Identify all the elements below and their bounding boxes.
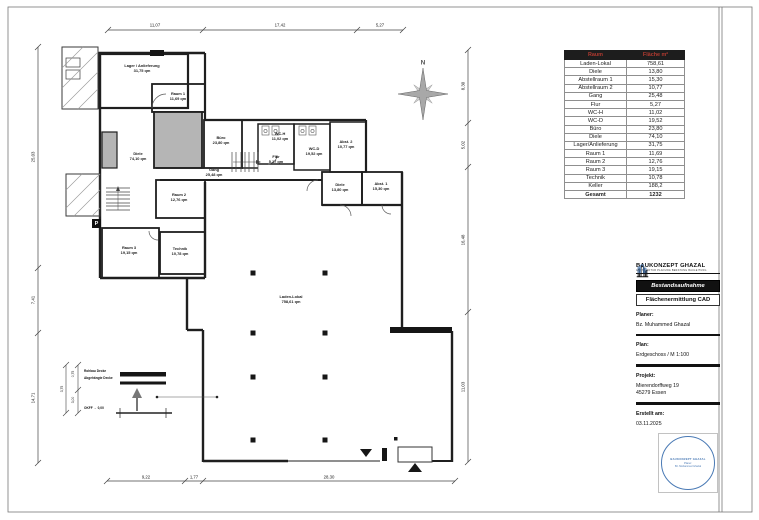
leader-line xyxy=(156,396,219,399)
plan-label: Plan: xyxy=(636,342,720,348)
table-row: WC-D19,52 xyxy=(565,117,685,125)
dim-top-3: 5,27 xyxy=(376,23,384,28)
detail-dim-2: 0,75 xyxy=(71,371,75,378)
divider xyxy=(636,334,720,337)
ceiling-detail xyxy=(63,362,172,418)
table-row: Laden-Lokal758,61 xyxy=(565,60,685,68)
area-table-header: Raum Fläche m² xyxy=(565,51,685,60)
project-address-line2: 45279 Essen xyxy=(636,390,720,397)
dim-bottom-3: 28,30 xyxy=(324,475,335,480)
parking-marker: P xyxy=(92,219,101,228)
doc-subtype-banner: Flächenermittlung CAD xyxy=(636,294,720,306)
doc-type-banner: Bestandsaufnahme xyxy=(636,280,720,292)
table-row: Diele74,10 xyxy=(565,133,685,141)
room-label-abst1: Abst. 115,30 qm xyxy=(373,182,390,192)
table-row: Büro23,80 xyxy=(565,125,685,133)
drawing-sheet: N P Lager / Anlieferung31,75 qm Raum 111… xyxy=(0,0,759,520)
entrance-markers xyxy=(360,437,432,472)
table-row: Technik10,78 xyxy=(565,174,685,182)
table-row: Raum 212,76 xyxy=(565,158,685,166)
dim-left-1: 25,03 xyxy=(31,152,36,163)
dim-bottom-2: 1,77 xyxy=(190,475,198,480)
detail-dim-3: 3,00 xyxy=(71,397,75,404)
dim-right-3: 16,48 xyxy=(461,235,466,246)
table-row: Gang25,48 xyxy=(565,92,685,100)
room-label-diele-2: Diele13,80 qm xyxy=(332,183,349,193)
detail-label-rohbau-decke: Rohbau Decke xyxy=(84,369,106,373)
room-label-raum1: Raum 111,69 qm xyxy=(170,92,186,102)
area-table: Raum Fläche m² Laden-Lokal758,61 Diele13… xyxy=(564,50,685,199)
stamp-company: BAUKONZEPT GHAZAL xyxy=(670,457,705,461)
table-row: Abstellraum 115,30 xyxy=(565,76,685,84)
divider xyxy=(636,402,720,405)
table-row: Abstellraum 210,77 xyxy=(565,84,685,92)
plan-value: Erdgeschoss / M 1:100 xyxy=(636,352,720,359)
table-row: Raum 111,69 xyxy=(565,150,685,158)
room-label-wcd: WC-D19,52 qm xyxy=(306,147,323,157)
room-label-gang: Gang25,48 qm xyxy=(206,168,223,178)
room-label-raum2: Raum 212,76 qm xyxy=(171,193,188,203)
stamp-circle: BAUKONZEPT GHAZAL Planer: Bz. Muhammed G… xyxy=(661,436,715,490)
room-label-ladenlokal: Laden-Lokal758,61 qm xyxy=(280,295,303,305)
area-table-header-room: Raum xyxy=(565,51,627,60)
room-label-diele-1: Diele74,10 qm xyxy=(130,152,147,162)
detail-dim-1: 3,75 xyxy=(60,386,64,393)
title-block: BAUKONZEPT GHAZAL ARCHITEKTUR PLANUNG BE… xyxy=(636,263,720,493)
stamp-planner-name: Bz. Muhammed Ghazal xyxy=(675,465,701,468)
project-address-line1: Mierendorffweg 19 xyxy=(636,383,720,390)
table-row: WC-H11,02 xyxy=(565,109,685,117)
compass-rose-icon xyxy=(398,68,448,120)
table-total-row: Gesamt1232 xyxy=(565,191,685,199)
planner-value: Bz. Muhammed Ghazal xyxy=(636,322,720,329)
room-label-technik: Technik10,78 qm xyxy=(172,247,189,257)
created-label: Erstellt am: xyxy=(636,411,720,417)
dim-right-1: 8,30 xyxy=(461,82,466,90)
dim-right-4: 11,03 xyxy=(461,382,466,392)
garage-terrace xyxy=(62,47,100,216)
table-row: Lager/Anlieferung31,75 xyxy=(565,141,685,149)
table-row: Flur5,27 xyxy=(565,100,685,108)
planner-label: Planer: xyxy=(636,312,720,318)
created-value: 03.11.2025 xyxy=(636,421,720,428)
room-label-abst2: Abst. 210,77 qm xyxy=(338,140,355,150)
wc-fixtures xyxy=(262,126,316,135)
stamp-building-icon xyxy=(636,263,648,274)
table-row: Raum 319,15 xyxy=(565,166,685,174)
walls xyxy=(98,50,453,462)
detail-label-abgehaengte-decke: Abgehängte Decke xyxy=(84,376,113,380)
detail-label-okff: OKFF → 0,00 xyxy=(84,406,104,410)
dim-left-2: 7,41 xyxy=(31,296,36,304)
dim-left-3: 14,71 xyxy=(31,393,36,404)
dim-bottom-1: 9,22 xyxy=(142,475,150,480)
north-label: N xyxy=(421,60,426,67)
room-label-flur: Flur5,27 qm xyxy=(269,155,284,165)
room-label-lager: Lager / Anlieferung31,75 qm xyxy=(124,64,159,74)
dim-top-2: 17,42 xyxy=(275,23,286,28)
room-label-raum3: Raum 319,15 qm xyxy=(121,246,138,256)
room-label-wch: WC-H11,02 qm xyxy=(272,132,288,142)
dim-top-1: 11,07 xyxy=(150,23,160,28)
area-table-header-area: Fläche m² xyxy=(627,51,685,60)
room-label-buero: Büro23,80 qm xyxy=(213,136,230,146)
planner-stamp: BAUKONZEPT GHAZAL Planer: Bz. Muhammed G… xyxy=(658,433,718,493)
project-label: Projekt: xyxy=(636,373,720,379)
divider xyxy=(636,364,720,367)
company-logo: BAUKONZEPT GHAZAL ARCHITEKTUR PLANUNG BE… xyxy=(636,263,720,274)
table-row: Diele13,80 xyxy=(565,68,685,76)
table-row: Keller188,2 xyxy=(565,182,685,190)
dim-right-2: 5,02 xyxy=(461,141,466,149)
